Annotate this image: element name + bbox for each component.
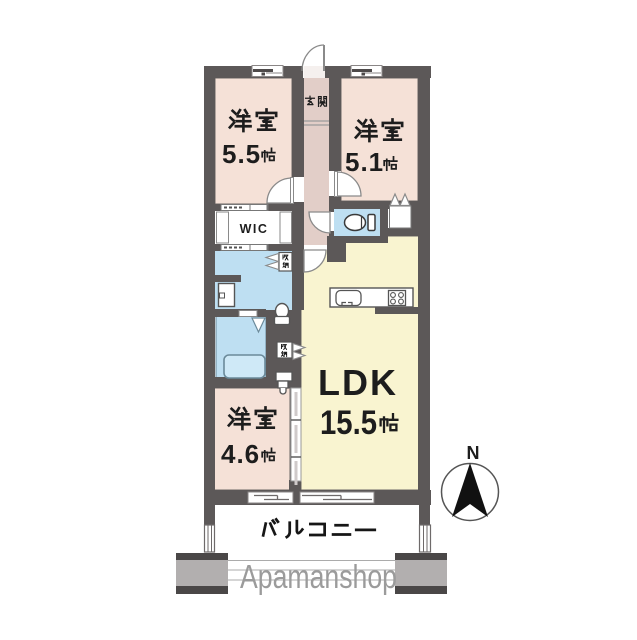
svg-text:N: N bbox=[467, 443, 480, 463]
svg-text:5.1: 5.1 bbox=[345, 147, 384, 177]
svg-text:LDK: LDK bbox=[318, 362, 398, 403]
svg-text:Apamanshop: Apamanshop bbox=[240, 558, 397, 595]
svg-text:4.6: 4.6 bbox=[221, 439, 260, 469]
svg-text:5.5: 5.5 bbox=[222, 139, 261, 169]
svg-text:WIC: WIC bbox=[240, 222, 269, 236]
svg-text:15.5: 15.5 bbox=[320, 404, 377, 442]
